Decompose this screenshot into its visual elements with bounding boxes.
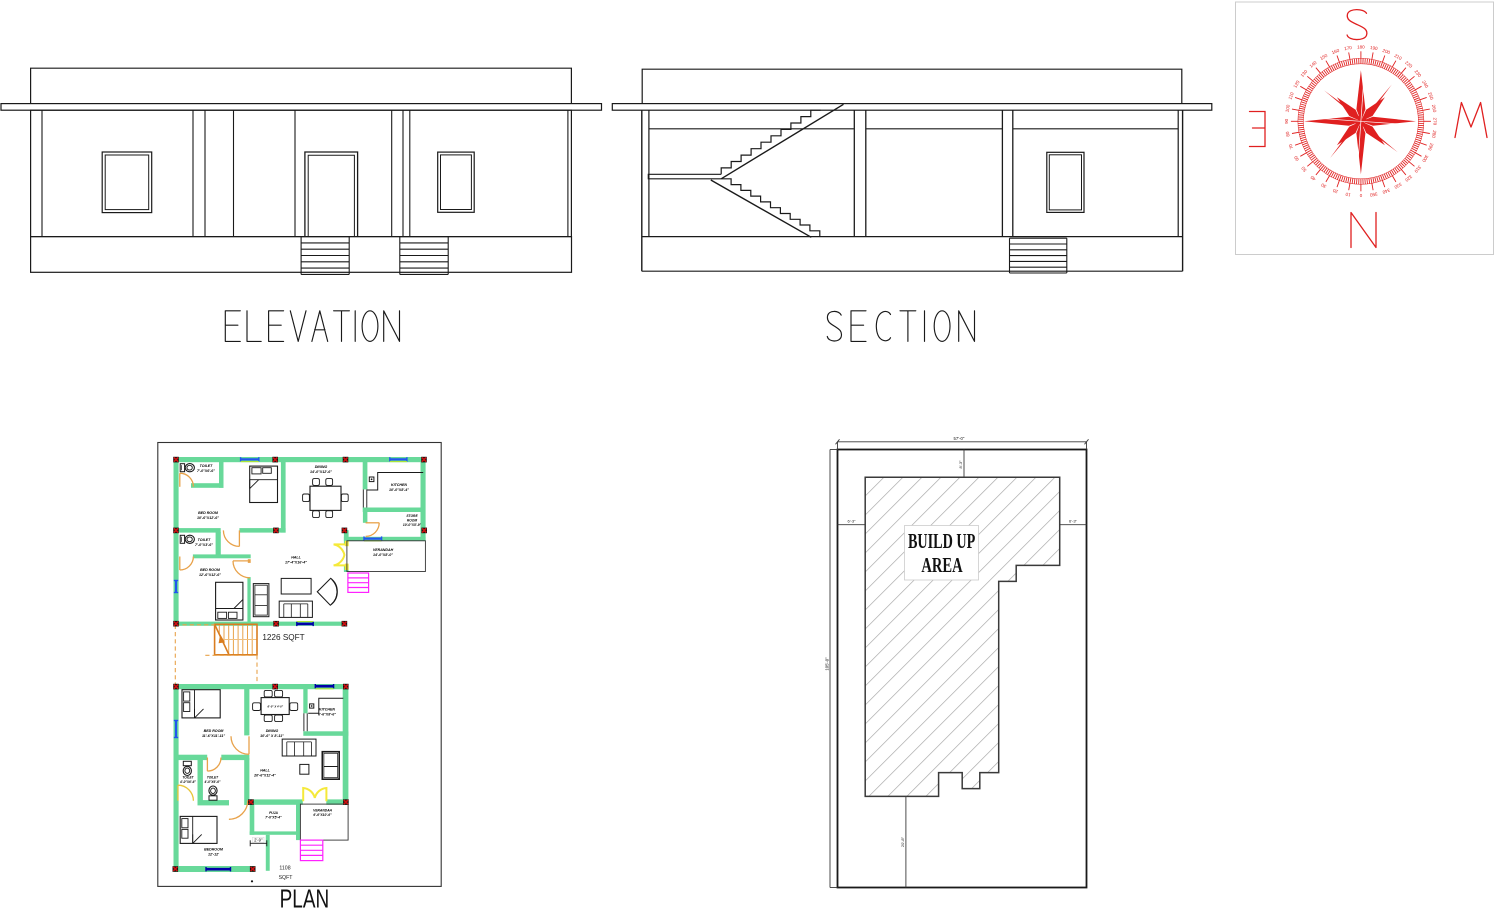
svg-text:260: 260 <box>1431 104 1437 113</box>
svg-text:300: 300 <box>1421 154 1429 164</box>
svg-text:270: 270 <box>1433 117 1438 125</box>
svg-text:170: 170 <box>1344 45 1353 51</box>
svg-text:20'-6"X11'-4": 20'-6"X11'-4" <box>253 773 276 777</box>
svg-text:BEDROOM: BEDROOM <box>204 848 224 852</box>
svg-text:STORE: STORE <box>406 514 418 518</box>
svg-text:230: 230 <box>1413 69 1422 78</box>
svg-text:PUJA: PUJA <box>269 811 278 815</box>
svg-text:SQFT: SQFT <box>279 875 294 881</box>
svg-text:7'-0"X6'-6": 7'-0"X6'-6" <box>197 469 215 473</box>
svg-text:AREA: AREA <box>921 553 963 577</box>
svg-text:ROOM: ROOM <box>407 519 418 523</box>
svg-text:VERANDAH: VERANDAH <box>373 548 394 552</box>
svg-text:105'-0": 105'-0" <box>825 657 830 671</box>
svg-text:14'-0"X8'-0": 14'-0"X8'-0" <box>373 553 393 557</box>
svg-text:120: 120 <box>1292 79 1300 89</box>
svg-text:350: 350 <box>1369 191 1378 197</box>
svg-text:100: 100 <box>1285 104 1291 113</box>
svg-text:DINING: DINING <box>315 465 328 469</box>
svg-text:1226 SQFT: 1226 SQFT <box>262 633 304 642</box>
svg-text:50: 50 <box>1300 165 1307 172</box>
svg-text:20: 20 <box>1332 188 1339 195</box>
svg-text:180: 180 <box>1357 45 1365 50</box>
svg-text:250: 250 <box>1427 91 1434 100</box>
svg-text:10'-0"X8'-4": 10'-0"X8'-4" <box>389 488 409 492</box>
svg-text:160: 160 <box>1331 48 1340 55</box>
svg-text:2'-9": 2'-9" <box>254 837 263 842</box>
svg-text:210: 210 <box>1393 53 1403 61</box>
svg-text:KITCHEN: KITCHEN <box>319 708 335 712</box>
svg-text:BED ROOM: BED ROOM <box>198 511 219 515</box>
svg-text:10: 10 <box>1345 191 1351 197</box>
svg-text:40: 40 <box>1309 174 1316 181</box>
svg-text:240: 240 <box>1421 80 1429 90</box>
svg-text:TOILET: TOILET <box>182 775 194 779</box>
svg-text:190: 190 <box>1370 45 1379 51</box>
svg-text:KITCHEN: KITCHEN <box>391 483 407 487</box>
svg-text:4'-0"X6'-6": 4'-0"X6'-6" <box>179 780 196 784</box>
svg-text:8'-3": 8'-3" <box>958 460 963 469</box>
svg-text:150: 150 <box>1319 53 1329 61</box>
svg-text:320: 320 <box>1404 174 1413 183</box>
svg-text:4'-0"X6'-6": 4'-0"X6'-6" <box>204 780 221 784</box>
svg-text:6'-3": 6'-3" <box>1069 519 1078 524</box>
svg-text:140: 140 <box>1309 60 1318 69</box>
svg-text:TOILET: TOILET <box>198 538 212 542</box>
svg-text:290: 290 <box>1427 142 1434 151</box>
svg-text:80: 80 <box>1285 131 1291 137</box>
svg-text:20'-8": 20'-8" <box>900 836 905 847</box>
svg-text:6'-6"X10'-6": 6'-6"X10'-6" <box>313 813 332 817</box>
svg-text:12'-12': 12'-12' <box>208 852 219 856</box>
svg-text:BED ROOM: BED ROOM <box>200 568 221 572</box>
svg-text:60: 60 <box>1293 155 1300 162</box>
svg-text:6'-0" X 4'-0": 6'-0" X 4'-0" <box>268 705 284 709</box>
svg-text:TOILET: TOILET <box>207 775 219 779</box>
svg-text:0: 0 <box>1359 193 1362 198</box>
svg-text:DINING: DINING <box>266 729 279 733</box>
svg-text:200: 200 <box>1382 48 1391 55</box>
svg-text:11'-6"X11'-11": 11'-6"X11'-11" <box>202 734 225 738</box>
svg-text:280: 280 <box>1431 130 1437 139</box>
svg-text:10'-0"X5'-9": 10'-0"X5'-9" <box>403 523 422 527</box>
svg-text:HALL: HALL <box>260 769 270 773</box>
svg-text:TOILET: TOILET <box>200 464 214 468</box>
svg-text:30: 30 <box>1320 182 1327 189</box>
svg-text:7'-6"X5'-4": 7'-6"X5'-4" <box>265 816 282 820</box>
svg-text:340: 340 <box>1381 187 1390 194</box>
svg-text:90: 90 <box>1284 118 1289 124</box>
svg-text:VERANDAH: VERANDAH <box>313 809 332 813</box>
svg-text:BUILD UP: BUILD UP <box>908 529 975 553</box>
svg-text:57'-0": 57'-0" <box>954 436 965 441</box>
svg-text:HALL: HALL <box>291 556 301 560</box>
svg-text:6'-6"X8'-6": 6'-6"X8'-6" <box>318 712 336 716</box>
svg-text:330: 330 <box>1393 182 1403 190</box>
svg-text:1108: 1108 <box>279 866 290 872</box>
svg-text:10'-6" X 8'-11": 10'-6" X 8'-11" <box>260 734 284 738</box>
svg-text:12'-6"X12'-6": 12'-6"X12'-6" <box>199 573 221 577</box>
svg-text:10'-6"X12'-6": 10'-6"X12'-6" <box>197 516 219 520</box>
svg-text:PLAN: PLAN <box>280 885 330 913</box>
svg-text:6'-3": 6'-3" <box>848 519 857 524</box>
svg-text:110: 110 <box>1288 91 1295 100</box>
svg-text:BED ROOM: BED ROOM <box>204 729 225 733</box>
svg-text:7'-0"X3'-6": 7'-0"X3'-6" <box>195 543 213 547</box>
svg-text:70: 70 <box>1288 143 1295 150</box>
svg-text:17'-4"X16'-4": 17'-4"X16'-4" <box>285 560 307 564</box>
svg-text:14'-0"X12'-6": 14'-0"X12'-6" <box>310 470 332 474</box>
